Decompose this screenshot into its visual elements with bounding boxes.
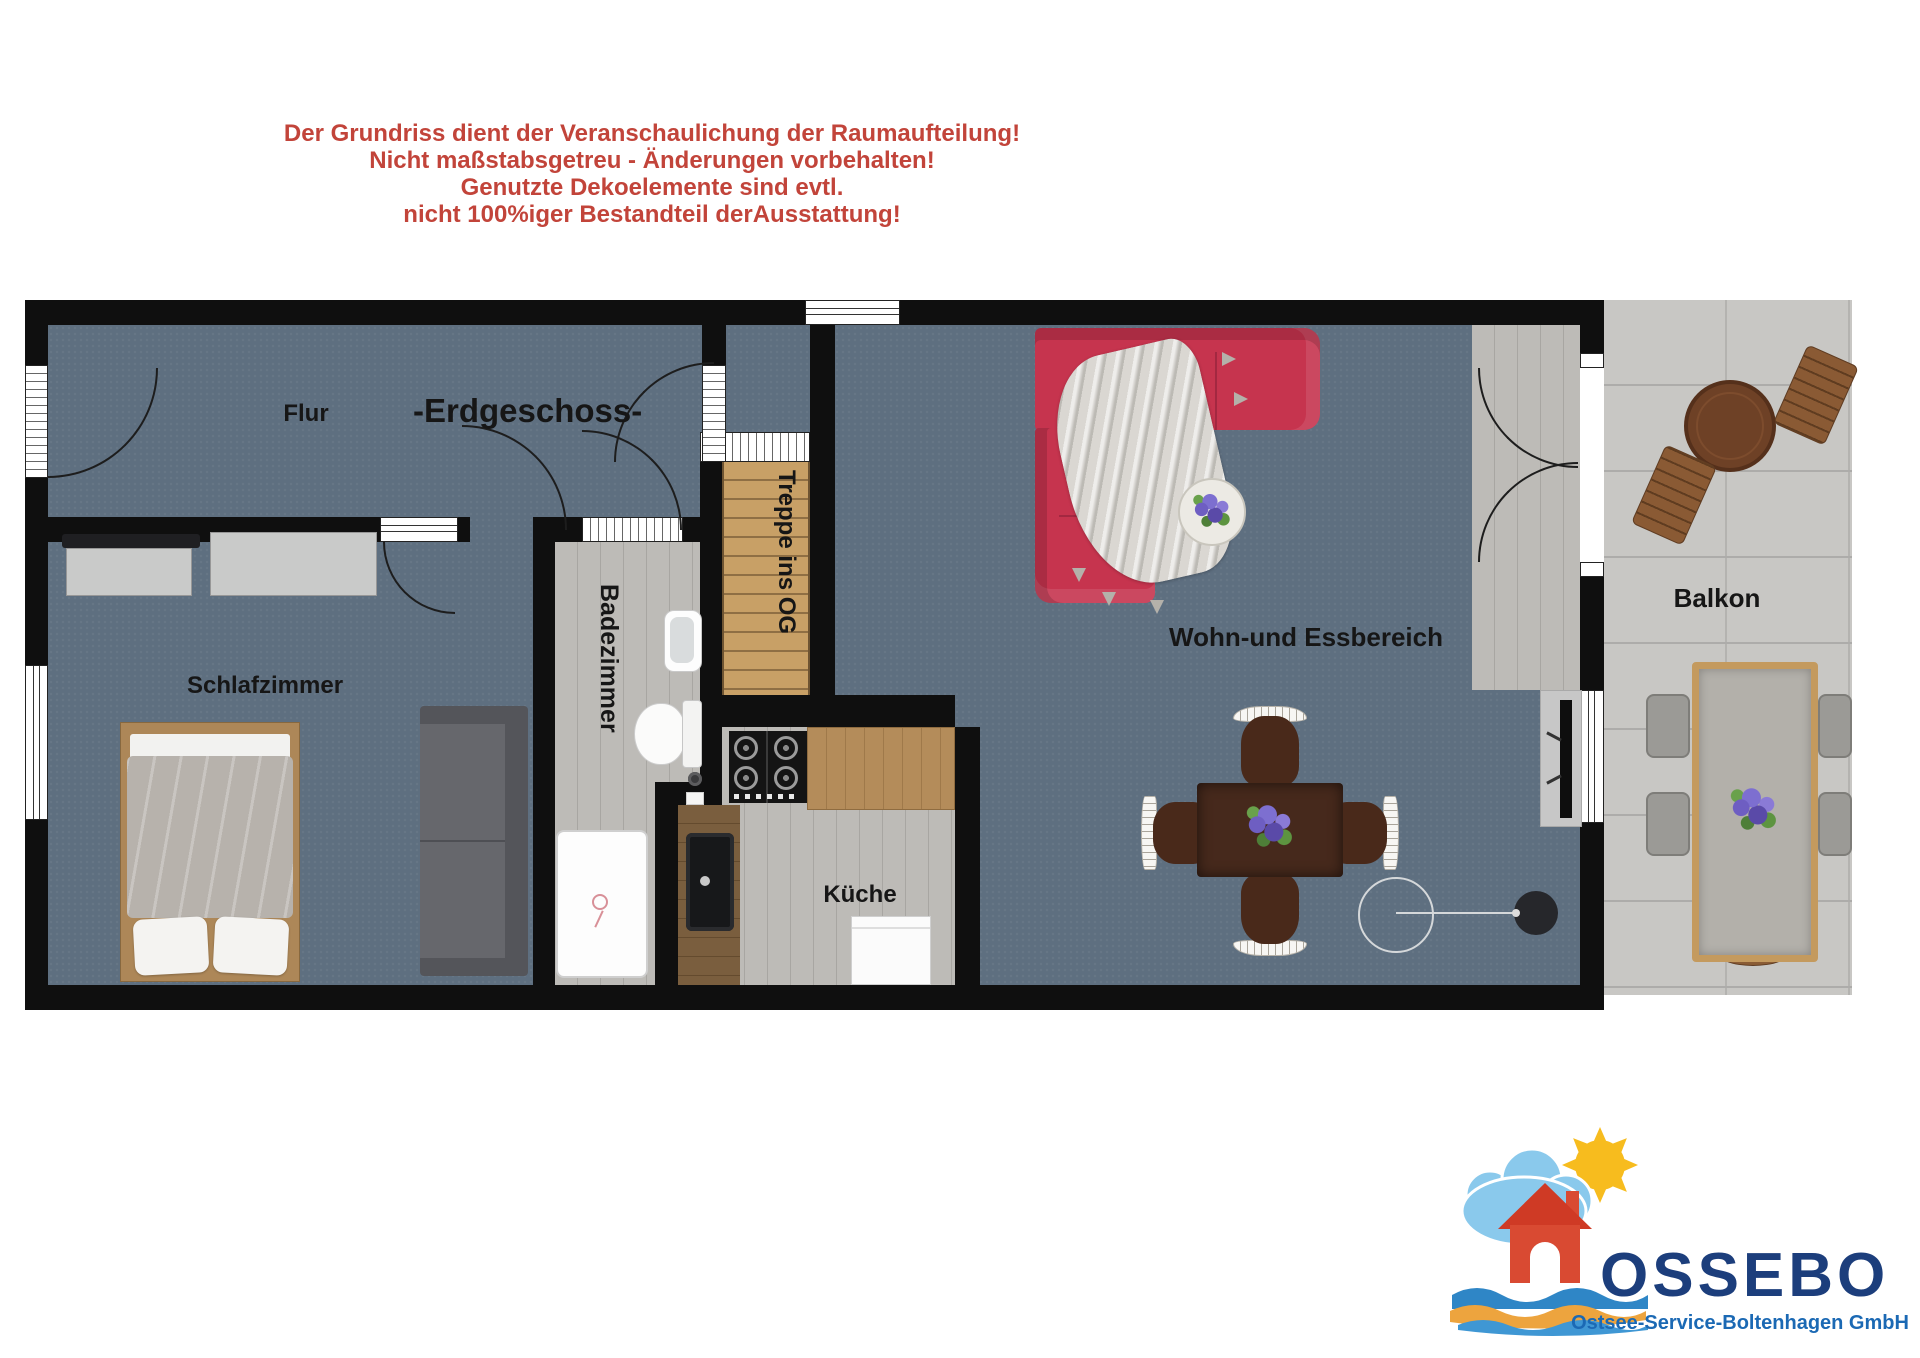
washbasin-bowl (670, 617, 694, 663)
burner (734, 766, 758, 790)
balcony-chair (1818, 694, 1852, 758)
entrance-door-leaf (25, 365, 48, 478)
room-label-balkon: Balkon (1637, 583, 1797, 614)
tv-on-dresser (62, 534, 200, 548)
shower-head (592, 894, 608, 910)
room-label-wohnbereich: Wohn-und Essbereich (1156, 622, 1456, 653)
bath-accessory (686, 792, 704, 805)
kitchen-sink (686, 833, 734, 931)
bed-duvet (127, 756, 293, 918)
disclaimer-text: Der Grundriss dient der Veranschaulichun… (252, 120, 1052, 228)
dresser (66, 548, 192, 596)
floor-drain (688, 772, 702, 786)
balcony-door-jamb (1580, 353, 1604, 368)
balcony-chair (1818, 792, 1852, 856)
toilet-tank (682, 700, 702, 768)
faucet (700, 876, 710, 886)
company-name: OSSEBO (1600, 1240, 1889, 1311)
room-label-schlafzimmer: Schlafzimmer (145, 672, 385, 700)
disclaimer-line: nicht 100%iger Bestandteil derAusstattun… (252, 201, 1052, 228)
wall (955, 727, 980, 985)
company-tagline: Ostsee-Service-Boltenhagen GmbH (1570, 1312, 1910, 1335)
wall (1580, 823, 1604, 1010)
burner (774, 766, 798, 790)
window-symbol (1580, 690, 1604, 823)
window-symbol (805, 300, 900, 325)
tv-screen (1560, 700, 1572, 818)
dresser (210, 532, 377, 596)
disclaimer-line: Nicht maßstabsgetreu - Änderungen vorbeh… (252, 147, 1052, 174)
balcony-door-jamb (1580, 562, 1604, 577)
window-symbol (380, 517, 458, 542)
plant-bouquet (1186, 486, 1238, 538)
plant-bouquet (1238, 795, 1302, 861)
wall (533, 517, 555, 985)
floorplan-page: Der Grundriss dient der Veranschaulichun… (0, 0, 1920, 1358)
pillow (213, 916, 290, 976)
room-label-badezimmer: Badezimmer (594, 584, 623, 733)
floor-lamp-shade (1514, 891, 1558, 935)
pillow (133, 916, 210, 976)
wall (810, 300, 835, 722)
sofa-cushion-divider (420, 840, 505, 842)
wall (25, 820, 48, 1010)
burner (774, 736, 798, 760)
kitchen-counter (807, 727, 955, 810)
toilet-bowl (634, 703, 686, 765)
dining-chair (1241, 874, 1299, 944)
room-label-treppe: Treppe ins OG (772, 470, 800, 634)
balcony-chair (1646, 792, 1690, 856)
wall (1580, 300, 1604, 355)
hob-divider (766, 731, 768, 803)
hob-knobs (734, 794, 794, 799)
balcony-chair (1646, 694, 1690, 758)
wall (25, 478, 48, 665)
window-symbol (25, 665, 48, 820)
sofa-seam (1215, 352, 1217, 430)
floor-lamp-base-arc (1358, 877, 1434, 953)
room-label-flur: Flur (250, 400, 362, 428)
wall (655, 805, 678, 985)
wall (25, 300, 48, 368)
disclaimer-line: Der Grundriss dient der Veranschaulichun… (252, 120, 1052, 147)
wall (702, 300, 726, 365)
wall (722, 695, 955, 727)
room-label-kueche: Küche (780, 881, 940, 909)
wall (25, 985, 1604, 1010)
floor-title: -Erdgeschoss- (413, 392, 642, 430)
burner (734, 736, 758, 760)
wall (1580, 565, 1604, 690)
wall (700, 462, 722, 782)
floor-lamp-arm (1396, 912, 1522, 914)
kitchen-appliance (851, 916, 931, 985)
floor-lamp-joint (1512, 909, 1520, 917)
bistro-table-ring (1696, 392, 1764, 460)
disclaimer-line: Genutzte Dekoelemente sind evtl. (252, 174, 1052, 201)
plant-bouquet (1722, 778, 1786, 844)
dining-chair (1241, 716, 1299, 786)
